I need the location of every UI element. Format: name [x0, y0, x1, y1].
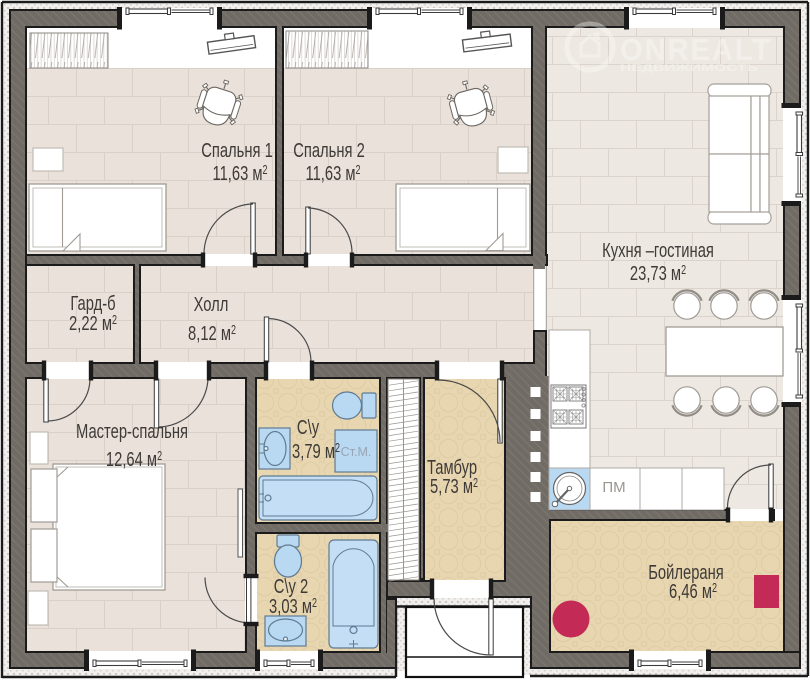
- svg-text:НЕДВИЖИМОСТЬ: НЕДВИЖИМОСТЬ: [620, 63, 758, 74]
- svg-text:Спальня 1: Спальня 1: [201, 139, 273, 162]
- svg-text:5,73 м2: 5,73 м2: [430, 475, 478, 498]
- svg-text:Ст.М.: Ст.М.: [341, 445, 372, 459]
- svg-text:23,73 м2: 23,73 м2: [630, 262, 686, 285]
- svg-text:ONREALT: ONREALT: [620, 32, 772, 67]
- svg-text:ПМ: ПМ: [602, 479, 625, 496]
- svg-text:8,12 м2: 8,12 м2: [188, 322, 236, 345]
- svg-text:Кухня –гостиная: Кухня –гостиная: [602, 239, 714, 262]
- svg-text:3,79 м2: 3,79 м2: [292, 440, 340, 463]
- svg-text:3,03 м2: 3,03 м2: [269, 595, 317, 618]
- svg-text:11,63 м2: 11,63 м2: [305, 162, 360, 185]
- svg-text:11,63 м2: 11,63 м2: [212, 162, 267, 185]
- svg-text:6,46 м2: 6,46 м2: [669, 580, 717, 603]
- svg-text:Холл: Холл: [194, 293, 229, 316]
- svg-text:2,22 м2: 2,22 м2: [69, 312, 117, 335]
- svg-text:Мастер-спальня: Мастер-спальня: [76, 420, 188, 443]
- svg-text:С\у: С\у: [297, 416, 319, 439]
- svg-text:Спальня 2: Спальня 2: [293, 139, 365, 162]
- svg-text:12,64 м2: 12,64 м2: [106, 448, 162, 471]
